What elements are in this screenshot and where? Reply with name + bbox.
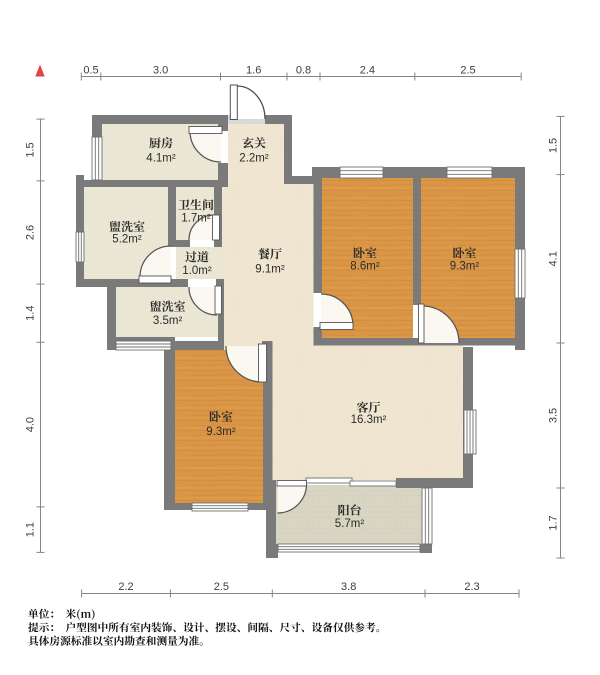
svg-text:3.5: 3.5 xyxy=(548,408,560,423)
svg-text:0.8: 0.8 xyxy=(296,64,311,76)
svg-text:1.4: 1.4 xyxy=(25,306,37,321)
svg-text:2.5: 2.5 xyxy=(214,581,229,593)
svg-text:2.6: 2.6 xyxy=(25,225,37,240)
svg-text:1.0m²: 1.0m² xyxy=(182,265,212,277)
svg-text:4.0: 4.0 xyxy=(25,417,37,432)
svg-text:9.1m²: 9.1m² xyxy=(255,264,285,276)
svg-text:5.2m²: 5.2m² xyxy=(112,233,142,245)
svg-text:1.6: 1.6 xyxy=(246,64,261,76)
svg-text:2.2: 2.2 xyxy=(118,581,133,593)
svg-text:3.5m²: 3.5m² xyxy=(153,315,183,327)
svg-text:1.5: 1.5 xyxy=(25,142,37,157)
svg-text:1.7m²: 1.7m² xyxy=(181,212,211,224)
svg-text:2.3: 2.3 xyxy=(464,581,479,593)
svg-text:5.7m²: 5.7m² xyxy=(335,518,365,530)
svg-text:2.5: 2.5 xyxy=(460,64,475,76)
svg-text:2.2m²: 2.2m² xyxy=(239,153,269,165)
svg-text:2.4: 2.4 xyxy=(360,64,375,76)
svg-text:1.5: 1.5 xyxy=(548,138,560,153)
svg-text:3.8: 3.8 xyxy=(341,581,356,593)
svg-text:9.3m²: 9.3m² xyxy=(206,426,236,438)
svg-text:3.0: 3.0 xyxy=(153,64,168,76)
svg-text:16.3m²: 16.3m² xyxy=(351,414,387,426)
svg-text:0.5: 0.5 xyxy=(83,64,98,76)
svg-text:8.6m²: 8.6m² xyxy=(350,261,380,273)
svg-text:4.1m²: 4.1m² xyxy=(146,153,176,165)
svg-text:4.1: 4.1 xyxy=(548,251,560,266)
svg-text:1.7: 1.7 xyxy=(548,515,560,530)
svg-text:9.3m²: 9.3m² xyxy=(450,261,480,273)
svg-text:1.1: 1.1 xyxy=(25,522,37,537)
